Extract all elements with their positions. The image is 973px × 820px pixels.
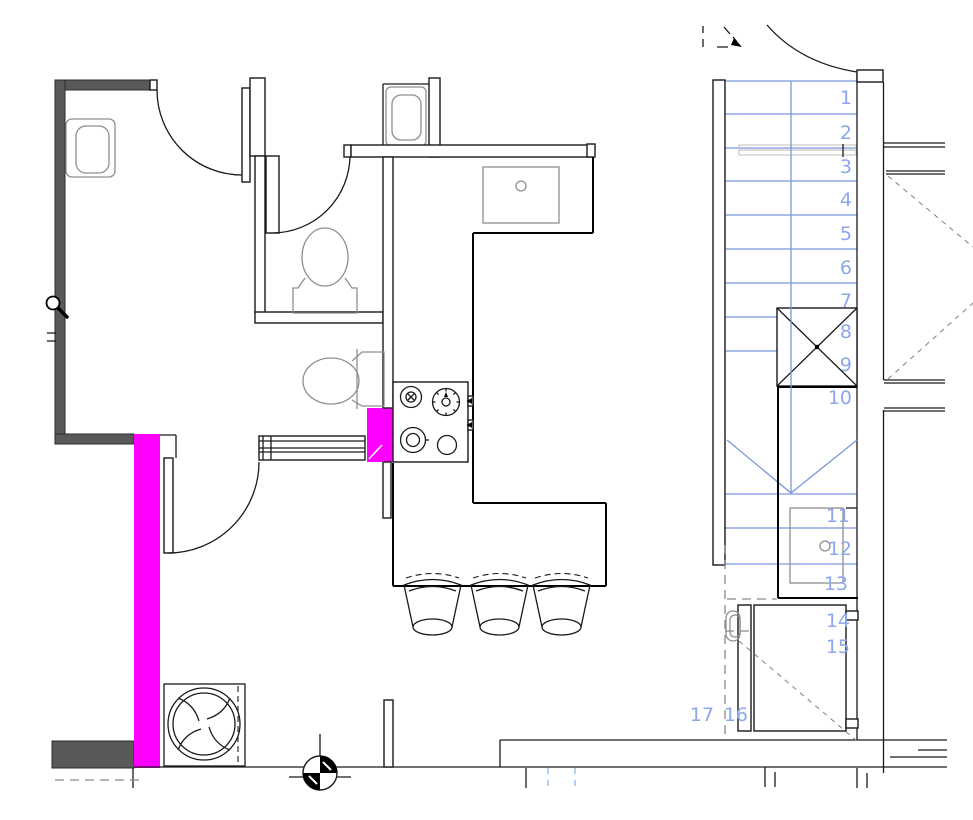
floorplan-canvas[interactable]: 1 2 3 4 5 6 7 8 9 10 11 12 13 14 15 16 1… [0, 0, 973, 820]
kitchen-sink [483, 167, 559, 223]
entry-door [150, 80, 250, 182]
stair-number: 12 [828, 538, 852, 560]
bar-stool [533, 574, 590, 636]
stove [393, 382, 473, 462]
highlighted-wall-left[interactable] [134, 434, 160, 768]
right-walls [883, 82, 973, 773]
stair-number: 16 [724, 704, 748, 726]
stair-number: 9 [840, 354, 852, 376]
toilet-wc [293, 228, 357, 313]
section-marker [289, 734, 351, 790]
stair-number: 3 [840, 156, 852, 178]
toilet-lower [303, 349, 384, 409]
stair-left-wall [713, 80, 725, 565]
bench-shelf [259, 436, 365, 460]
staircase [703, 25, 883, 741]
stair-number: 11 [826, 505, 850, 527]
stair-number: 6 [840, 257, 852, 279]
stair-number: 7 [840, 290, 852, 312]
highlighted-wall-kitchen[interactable] [367, 408, 393, 462]
wc-door [266, 145, 351, 233]
stair-number: 17 [690, 704, 714, 726]
bathroom-sink-top [386, 87, 426, 146]
bar-stools [404, 574, 590, 636]
stair-number: 4 [840, 189, 852, 211]
stair-number: 14 [826, 610, 850, 632]
stair-handrail [739, 144, 856, 157]
stair-number: 13 [824, 573, 848, 595]
wall-stub-top [857, 70, 883, 82]
hall-door [160, 435, 259, 553]
upper-door-arc [767, 25, 857, 72]
stair-number: 5 [840, 223, 852, 245]
stair-number: 1 [840, 87, 852, 109]
section-cut-symbol [703, 26, 742, 47]
floorplan-drawing: 1 2 3 4 5 6 7 8 9 10 11 12 13 14 15 16 1… [0, 0, 973, 820]
kitchen-counter [393, 157, 606, 586]
stair-number: 2 [840, 122, 852, 144]
stair-number: 8 [840, 321, 852, 343]
laundry-sink [66, 119, 115, 177]
ceiling-fan [164, 684, 245, 766]
stair-number: 10 [828, 387, 852, 409]
bar-stool [404, 574, 461, 636]
stair-number: 15 [826, 636, 850, 658]
bar-stool [471, 574, 528, 636]
stair-break-chevron [727, 440, 857, 493]
